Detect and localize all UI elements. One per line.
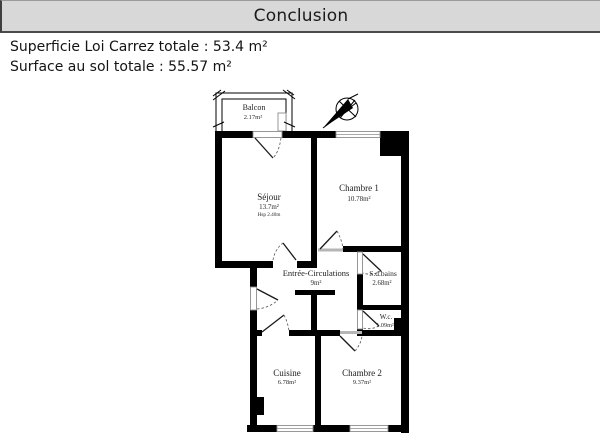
floor-plan: Balcon 2.17m² Séjour 13.7m² Hsp 2.40m Ch… — [0, 0, 600, 441]
room-area-chambre2: 9.37m² — [353, 379, 371, 386]
room-label-entree: Entrée-Circulations — [283, 268, 350, 278]
room-label-wc: W.c. — [380, 313, 393, 321]
room-label-chambre1: Chambre 1 — [339, 183, 379, 193]
room-note-sejour: Hsp 2.40m — [258, 212, 281, 218]
room-area-entree: 9m² — [310, 279, 321, 287]
room-area-cuisine: 6.78m² — [278, 379, 296, 386]
report-page: Conclusion Superficie Loi Carrez totale … — [0, 0, 600, 441]
room-area-sdb: 2.68m² — [372, 280, 391, 287]
room-area-balcon: 2.17m² — [244, 114, 262, 121]
room-label-sdb: S.d.bains — [369, 269, 397, 278]
room-area-chambre1: 10.78m² — [347, 195, 370, 203]
room-area-wc: 1.09m² — [376, 322, 394, 329]
room-label-balcon: Balcon — [243, 103, 266, 112]
room-label-sejour: Séjour — [257, 192, 281, 202]
room-label-cuisine: Cuisine — [273, 368, 301, 378]
room-label-chambre2: Chambre 2 — [342, 368, 382, 378]
room-area-sejour: 13.7m² — [259, 203, 279, 211]
north-arrow-icon — [323, 94, 358, 128]
